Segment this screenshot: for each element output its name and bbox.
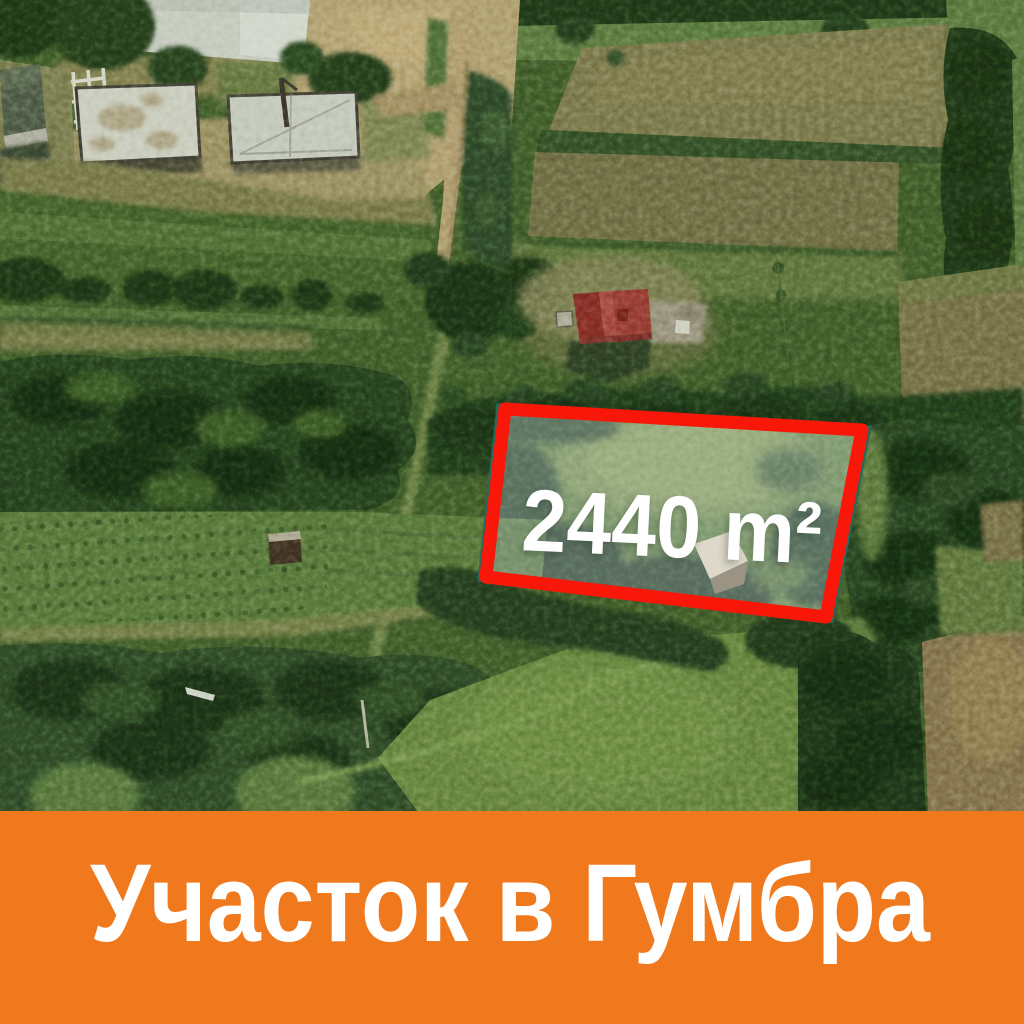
svg-text:Участок в Гумбра: Участок в Гумбра [90, 842, 931, 965]
svg-text:2440 m²: 2440 m² [520, 470, 824, 583]
